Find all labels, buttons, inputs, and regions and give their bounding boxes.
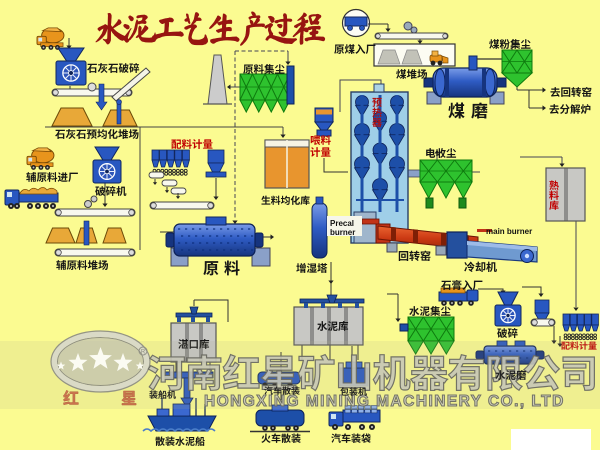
svg-text:burner: burner <box>330 228 355 237</box>
svg-text:main burner: main burner <box>486 227 532 236</box>
svg-text:R: R <box>141 350 146 356</box>
svg-text:HONGXING MINING MACHINERY CO.,: HONGXING MINING MACHINERY CO., LTD <box>204 393 565 410</box>
svg-text:Precal: Precal <box>330 219 354 228</box>
